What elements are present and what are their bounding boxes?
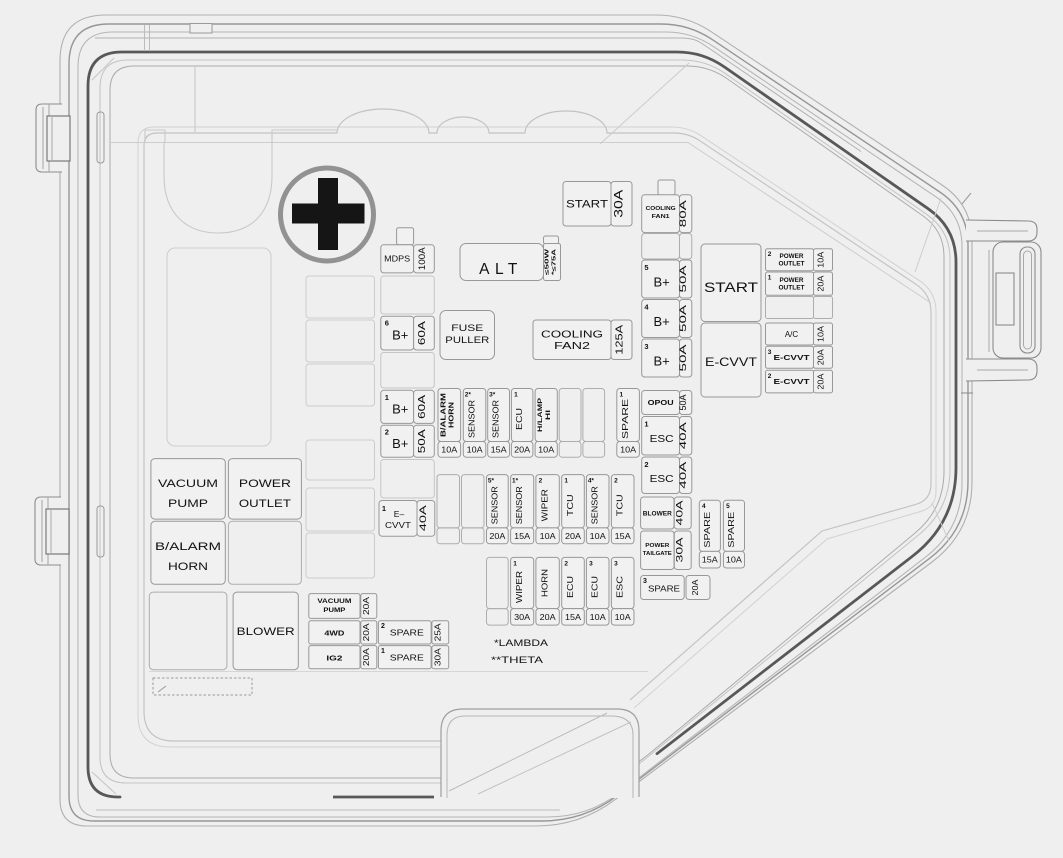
svg-text:50A: 50A	[678, 304, 689, 332]
svg-text:15A: 15A	[514, 532, 531, 541]
svg-text:30A: 30A	[432, 648, 442, 666]
svg-text:COOLING: COOLING	[541, 330, 603, 341]
svg-text:POWER: POWER	[645, 543, 669, 549]
svg-text:10A: 10A	[540, 532, 557, 541]
svg-text:10A: 10A	[726, 556, 743, 565]
svg-text:SPARE: SPARE	[390, 653, 424, 662]
svg-text:40A: 40A	[678, 461, 689, 489]
svg-text:B+: B+	[653, 354, 669, 369]
svg-text:2: 2	[768, 251, 772, 258]
svg-text:20A: 20A	[690, 579, 700, 595]
svg-text:3: 3	[643, 578, 647, 585]
svg-text:VACUUM: VACUUM	[317, 598, 351, 605]
svg-text:E-CVVT: E-CVVT	[705, 357, 757, 369]
svg-text:ESC: ESC	[650, 474, 674, 485]
svg-text:10A: 10A	[620, 445, 637, 454]
svg-text:ESC: ESC	[650, 434, 674, 445]
svg-text:5: 5	[644, 263, 648, 272]
svg-text:25A: 25A	[432, 623, 442, 641]
svg-text:1: 1	[385, 393, 389, 402]
svg-text:*≤75A: *≤75A	[552, 249, 558, 275]
svg-text:B/ALARM: B/ALARM	[440, 393, 447, 437]
svg-text:H/LAMP: H/LAMP	[537, 397, 544, 432]
svg-text:CVVT: CVVT	[385, 520, 411, 530]
svg-text:1*: 1*	[512, 478, 519, 485]
svg-text:ECU: ECU	[590, 576, 600, 598]
svg-text:1: 1	[768, 275, 772, 282]
svg-text:1: 1	[564, 478, 568, 485]
svg-text:20A: 20A	[514, 445, 531, 454]
svg-text:SPARE: SPARE	[648, 585, 680, 594]
svg-text:OUTLET: OUTLET	[779, 285, 805, 292]
svg-text:6: 6	[385, 319, 389, 328]
svg-text:HI: HI	[545, 410, 552, 420]
svg-text:5: 5	[726, 503, 730, 510]
svg-text:40A: 40A	[418, 504, 429, 531]
svg-text:10A: 10A	[538, 445, 555, 454]
svg-text:PUMP: PUMP	[168, 498, 208, 510]
svg-text:2: 2	[768, 373, 772, 380]
svg-text:FUSE: FUSE	[451, 323, 483, 334]
svg-text:≤50W: ≤50W	[545, 249, 551, 275]
svg-text:1: 1	[381, 648, 385, 655]
svg-text:1: 1	[619, 392, 623, 399]
svg-text:50A: 50A	[678, 394, 689, 411]
svg-text:START: START	[566, 199, 608, 211]
svg-text:SPARE: SPARE	[727, 512, 736, 548]
svg-text:40A: 40A	[678, 421, 689, 449]
svg-text:10A: 10A	[590, 613, 607, 622]
svg-text:3: 3	[614, 560, 618, 567]
svg-text:2: 2	[385, 428, 389, 437]
svg-text:20A: 20A	[489, 532, 506, 541]
svg-text:SENSOR: SENSOR	[489, 486, 499, 524]
svg-text:2: 2	[644, 460, 648, 469]
svg-text:3: 3	[644, 342, 648, 351]
svg-text:50A: 50A	[678, 343, 689, 371]
svg-text:PUMP: PUMP	[323, 607, 346, 614]
svg-text:START: START	[704, 280, 758, 295]
svg-text:B+: B+	[392, 436, 408, 451]
svg-text:ECU: ECU	[514, 408, 524, 430]
svg-text:*LAMBDA: *LAMBDA	[494, 638, 548, 648]
svg-text:30A: 30A	[514, 613, 531, 622]
svg-text:TAILGATE: TAILGATE	[643, 551, 672, 557]
svg-text:10A: 10A	[467, 445, 484, 454]
svg-text:TCU: TCU	[565, 494, 575, 516]
svg-text:B/ALARM: B/ALARM	[155, 541, 221, 553]
svg-text:MDPS: MDPS	[384, 255, 410, 264]
svg-text:15A: 15A	[565, 613, 582, 622]
svg-text:2: 2	[564, 560, 568, 567]
svg-text:1: 1	[514, 392, 518, 399]
svg-text:3: 3	[768, 349, 772, 356]
svg-text:10A: 10A	[615, 613, 632, 622]
svg-text:5*: 5*	[488, 478, 495, 485]
svg-text:FAN1: FAN1	[652, 214, 670, 220]
svg-text:A/C: A/C	[785, 330, 799, 339]
svg-text:BLOWER: BLOWER	[237, 626, 295, 638]
svg-text:20A: 20A	[540, 613, 557, 622]
svg-text:30A: 30A	[675, 538, 685, 563]
svg-text:10A: 10A	[441, 445, 458, 454]
svg-text:2: 2	[539, 478, 543, 485]
svg-text:COOLING: COOLING	[646, 206, 676, 212]
svg-text:10A: 10A	[590, 532, 607, 541]
svg-text:4: 4	[702, 503, 706, 510]
svg-text:3: 3	[589, 560, 593, 567]
svg-text:20A: 20A	[362, 623, 371, 642]
svg-text:2: 2	[614, 478, 618, 485]
svg-text:2: 2	[381, 623, 385, 630]
svg-text:E-CVVT: E-CVVT	[774, 353, 811, 362]
svg-text:20A: 20A	[362, 647, 371, 666]
svg-text:B+: B+	[653, 275, 669, 290]
svg-text:WIPER: WIPER	[540, 489, 550, 521]
svg-text:4*: 4*	[588, 478, 595, 485]
svg-text:SPARE: SPARE	[390, 629, 424, 638]
svg-text:ESC: ESC	[615, 576, 625, 598]
svg-text:15A: 15A	[615, 532, 632, 541]
svg-text:50A: 50A	[417, 429, 428, 453]
svg-text:OPOU: OPOU	[648, 398, 674, 407]
svg-text:3*: 3*	[489, 392, 496, 399]
svg-text:**THETA: **THETA	[491, 655, 543, 665]
svg-text:SENSOR: SENSOR	[467, 400, 477, 438]
svg-text:HORN: HORN	[540, 569, 550, 597]
svg-text:B+: B+	[392, 328, 408, 343]
svg-text:80A: 80A	[678, 199, 689, 227]
svg-text:PULLER: PULLER	[445, 335, 489, 346]
svg-text:20A: 20A	[817, 275, 826, 292]
svg-text:B+: B+	[392, 401, 408, 416]
svg-text:20A: 20A	[817, 373, 826, 390]
svg-text:SPARE: SPARE	[703, 512, 712, 548]
svg-text:15A: 15A	[702, 556, 719, 565]
svg-text:ALT: ALT	[479, 261, 523, 278]
svg-text:OUTLET: OUTLET	[239, 498, 291, 510]
svg-text:ECU: ECU	[565, 576, 575, 598]
svg-text:125A: 125A	[614, 325, 626, 355]
svg-text:10A: 10A	[817, 251, 826, 268]
svg-text:4WD: 4WD	[324, 629, 345, 638]
svg-text:50A: 50A	[678, 264, 689, 292]
svg-text:40A: 40A	[675, 501, 685, 526]
svg-text:B+: B+	[653, 314, 669, 329]
svg-text:HORN: HORN	[448, 402, 455, 428]
svg-text:VACUUM: VACUUM	[158, 478, 218, 490]
svg-text:10A: 10A	[817, 325, 826, 342]
svg-text:60A: 60A	[417, 321, 428, 345]
svg-text:SENSOR: SENSOR	[514, 486, 524, 524]
svg-text:IG2: IG2	[326, 653, 342, 662]
svg-text:1: 1	[644, 420, 648, 429]
svg-text:100A: 100A	[417, 247, 427, 270]
svg-text:60A: 60A	[417, 394, 428, 418]
svg-text:POWER: POWER	[780, 253, 804, 260]
svg-text:SPARE: SPARE	[620, 399, 630, 439]
svg-text:15A: 15A	[491, 445, 508, 454]
svg-text:SENSOR: SENSOR	[491, 400, 501, 438]
svg-text:POWER: POWER	[239, 478, 291, 490]
svg-text:TCU: TCU	[615, 494, 625, 516]
svg-text:2*: 2*	[465, 392, 472, 399]
svg-text:BLOWER: BLOWER	[643, 512, 673, 518]
svg-text:E–: E–	[394, 509, 405, 519]
svg-text:WIPER: WIPER	[514, 571, 524, 603]
svg-text:1: 1	[513, 560, 517, 567]
svg-text:OUTLET: OUTLET	[779, 261, 805, 268]
svg-text:1: 1	[382, 504, 386, 513]
svg-text:HORN: HORN	[168, 561, 208, 573]
svg-text:20A: 20A	[362, 596, 371, 615]
svg-text:POWER: POWER	[780, 277, 804, 284]
svg-text:FAN2: FAN2	[554, 341, 591, 352]
svg-text:SENSOR: SENSOR	[590, 486, 600, 524]
svg-text:30A: 30A	[614, 189, 626, 217]
svg-text:20A: 20A	[817, 349, 826, 366]
svg-text:E-CVVT: E-CVVT	[774, 377, 811, 386]
svg-text:20A: 20A	[565, 532, 582, 541]
